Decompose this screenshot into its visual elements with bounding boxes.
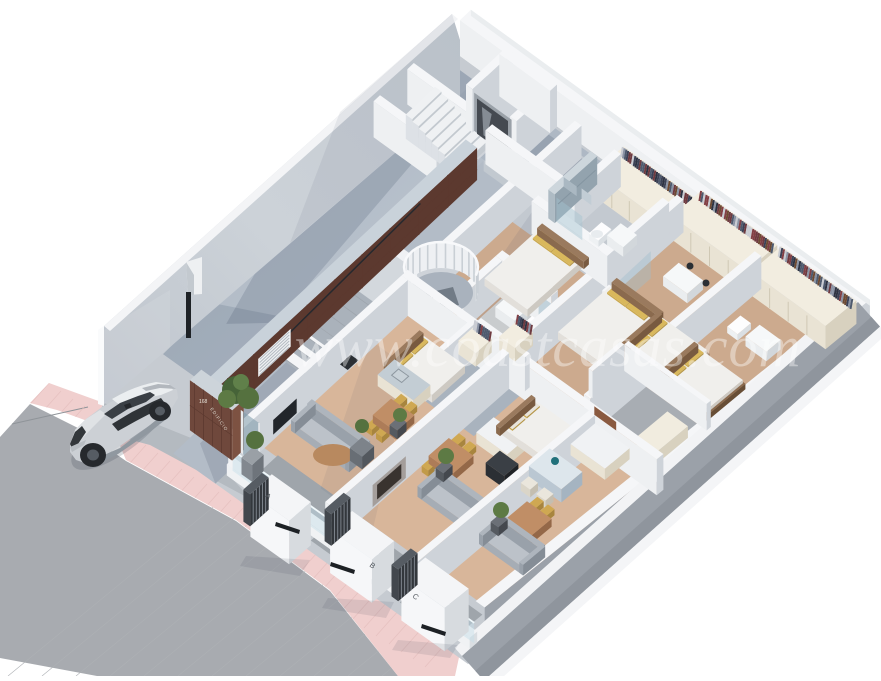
svg-text:168: 168	[199, 399, 208, 405]
svg-text:www.coastcasas.com: www.coastcasas.com	[295, 314, 802, 379]
